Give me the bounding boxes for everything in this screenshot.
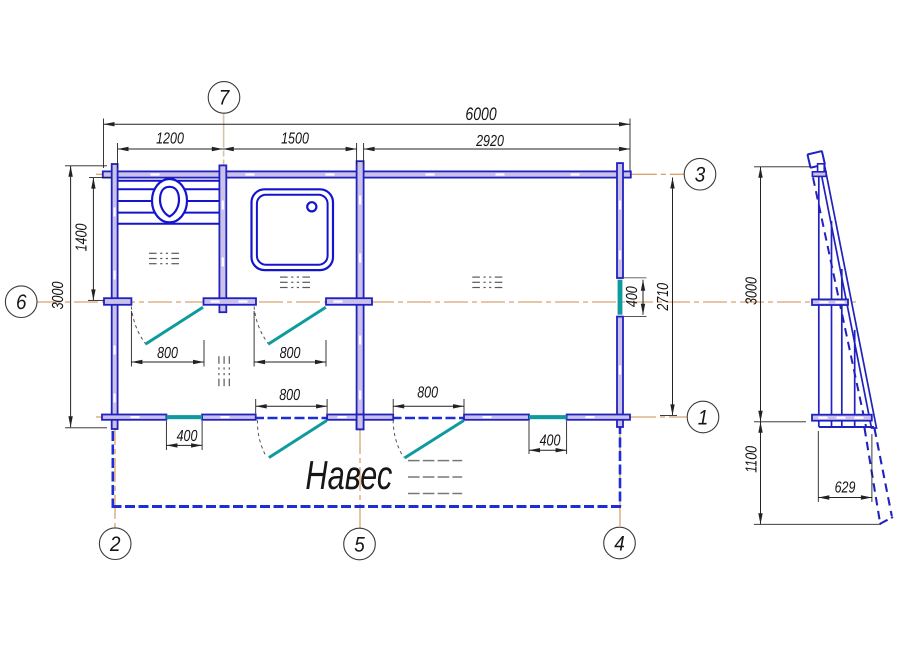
svg-text:5: 5 [354, 533, 365, 556]
svg-text:2710: 2710 [655, 283, 672, 312]
svg-text:6: 6 [16, 291, 27, 314]
svg-text:629: 629 [835, 480, 856, 497]
svg-text:400: 400 [624, 286, 641, 307]
svg-text:1200: 1200 [156, 131, 184, 148]
svg-text:800: 800 [417, 385, 438, 402]
svg-text:1: 1 [698, 406, 709, 429]
svg-text:1500: 1500 [281, 131, 309, 148]
svg-text:1400: 1400 [73, 224, 90, 252]
svg-text:4: 4 [614, 532, 625, 555]
svg-text:800: 800 [279, 387, 300, 404]
svg-text:800: 800 [280, 345, 301, 362]
svg-text:1100: 1100 [743, 446, 760, 473]
svg-text:3000: 3000 [50, 282, 67, 310]
svg-text:3000: 3000 [743, 277, 760, 305]
svg-text:2920: 2920 [475, 133, 504, 150]
svg-text:Навес: Навес [305, 452, 392, 498]
svg-text:3: 3 [695, 164, 706, 187]
svg-text:2: 2 [109, 533, 121, 556]
svg-text:800: 800 [157, 345, 178, 362]
svg-text:7: 7 [219, 87, 231, 110]
svg-text:6000: 6000 [465, 104, 496, 124]
svg-text:400: 400 [540, 433, 561, 450]
svg-text:400: 400 [177, 428, 198, 445]
